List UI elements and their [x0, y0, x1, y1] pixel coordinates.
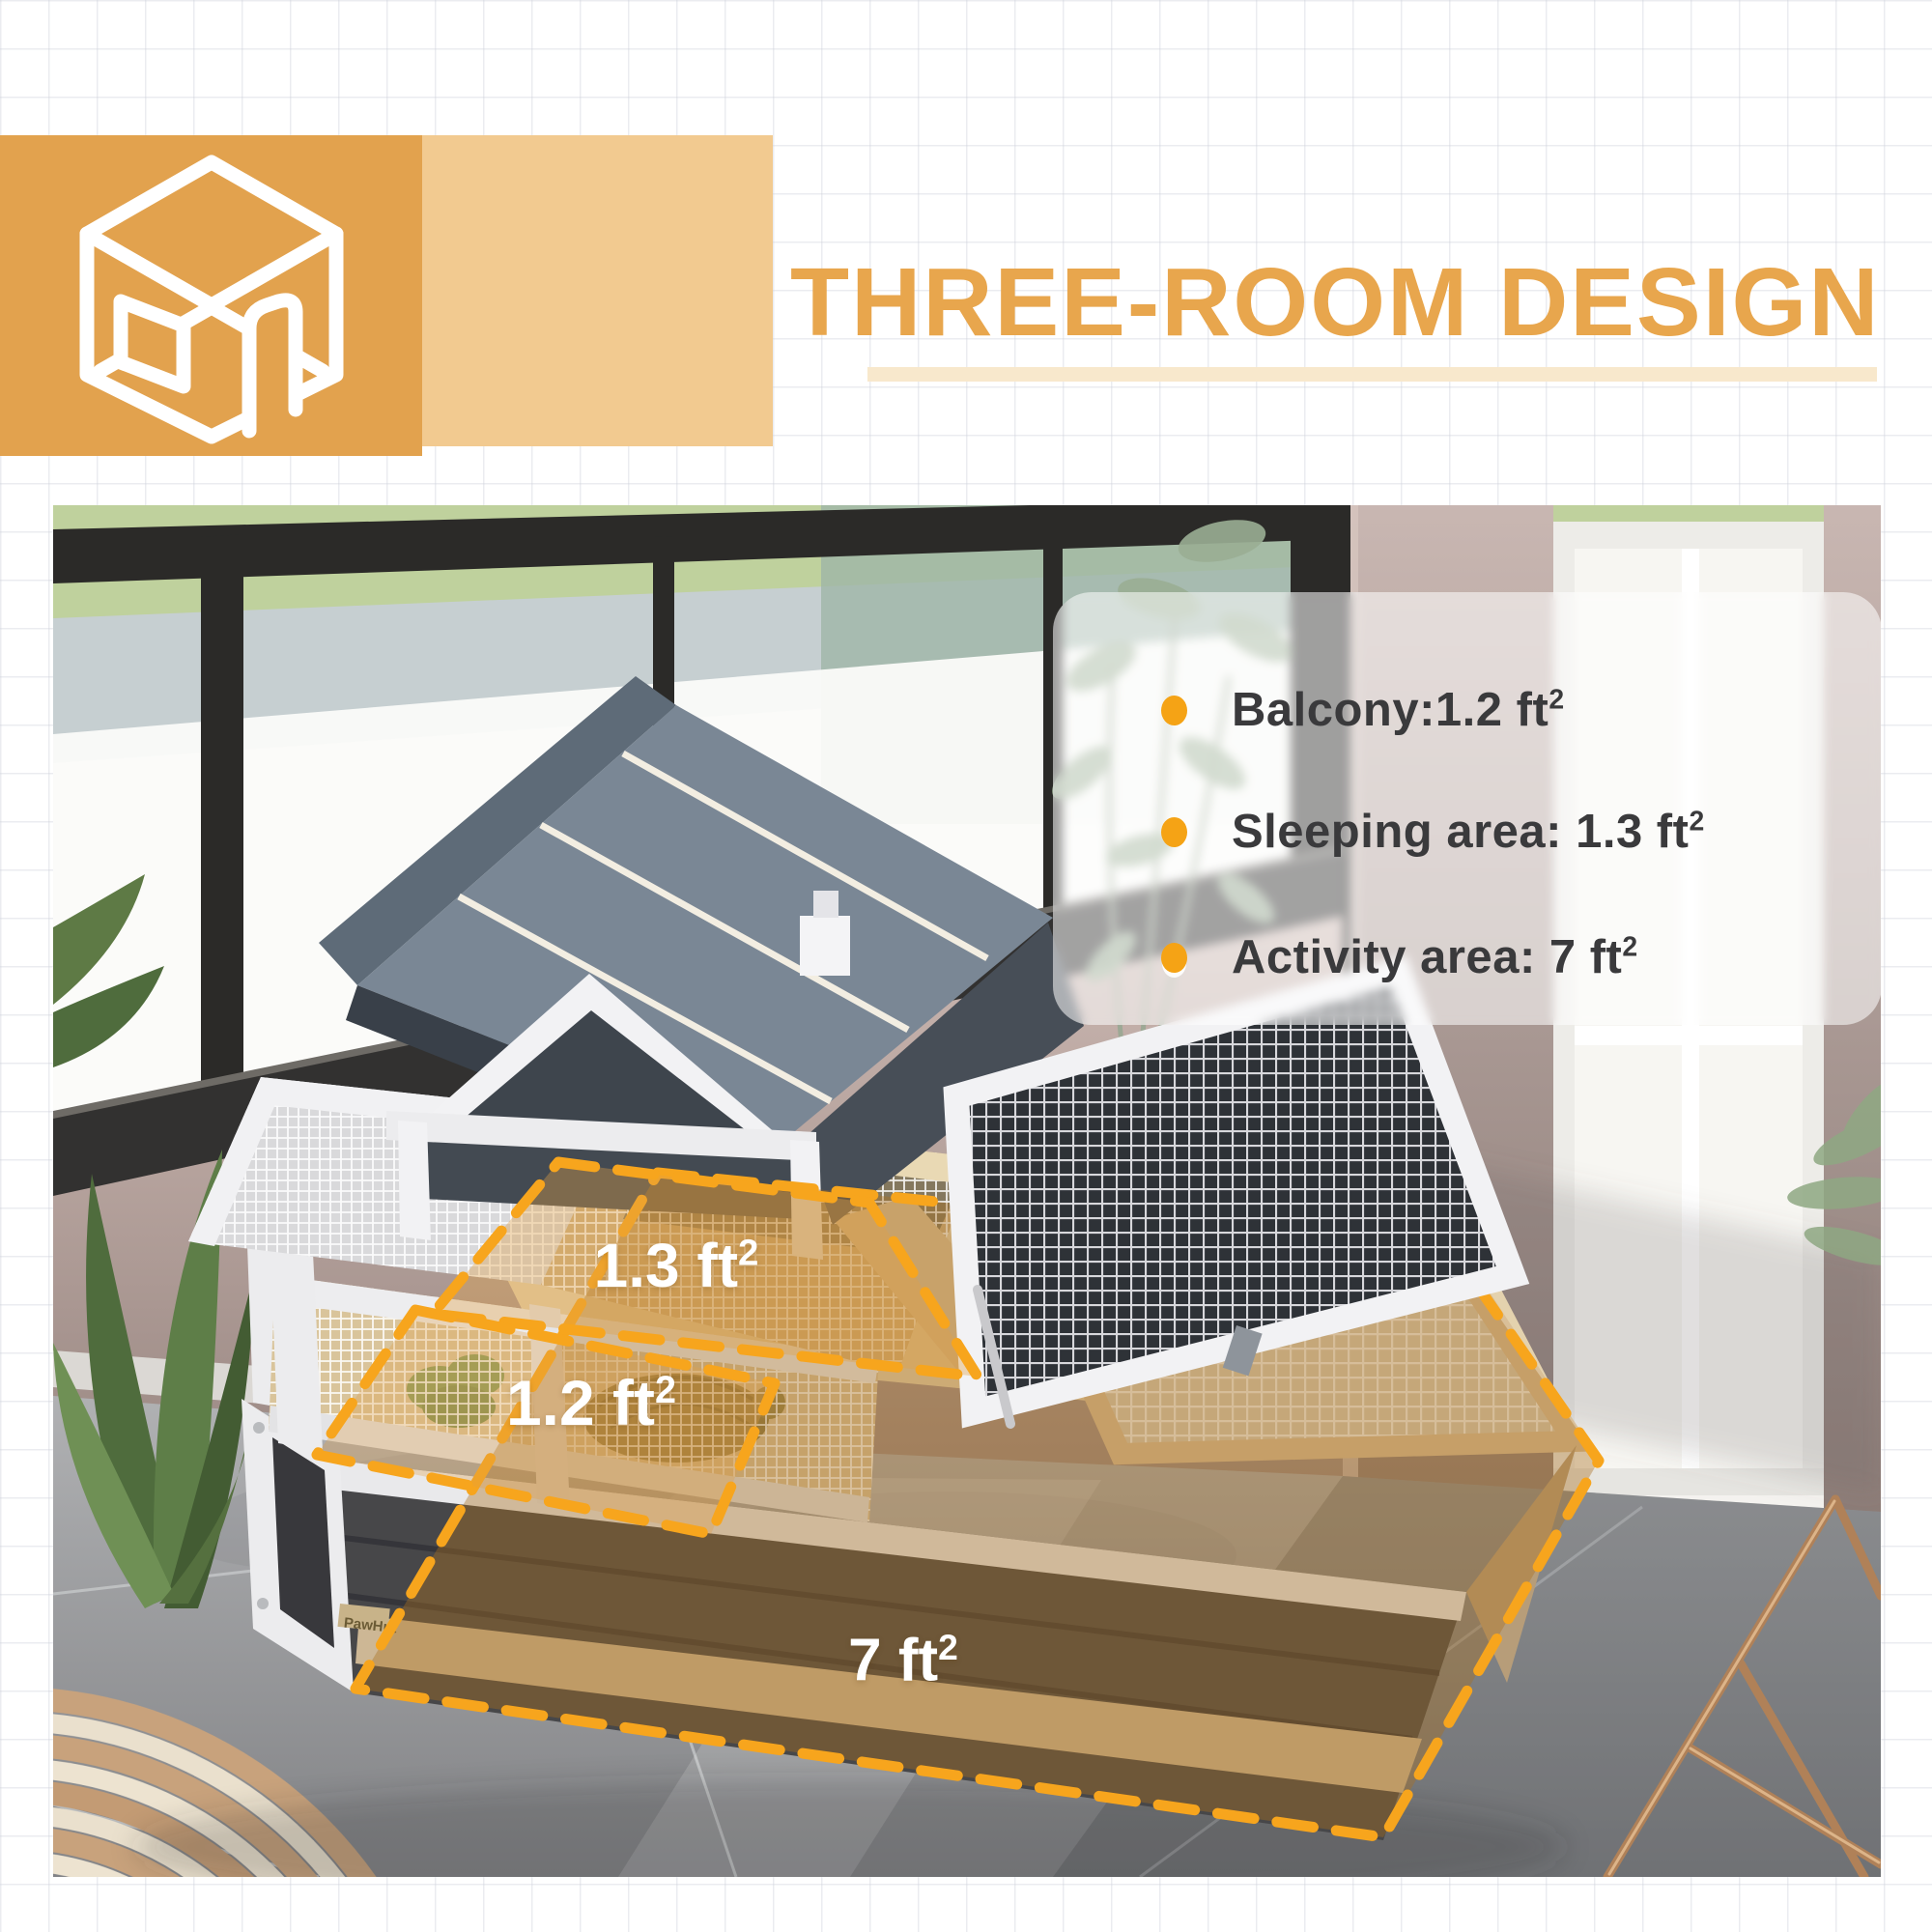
product-infographic: THREE-ROOM DESIGN	[0, 0, 1932, 1932]
page-title: THREE-ROOM DESIGN	[790, 247, 1882, 358]
panel-item-activity-area: Activity area: 7 ft2	[1053, 928, 1638, 986]
product-photo: PawHut	[53, 505, 1881, 1877]
isometric-room-icon	[0, 135, 422, 456]
sleeping-area-label: 1.3 ft2	[594, 1230, 759, 1301]
title-underline	[867, 367, 1877, 382]
panel-item-sleeping-area: Sleeping area: 1.3 ft2	[1053, 803, 1705, 861]
info-panel: Balcony:1.2 ft2 Sleeping area: 1.3 ft2 A…	[1053, 592, 1881, 1025]
balcony-area-label: 1.2 ft2	[506, 1366, 676, 1439]
bullet-icon	[1161, 817, 1187, 847]
activity-area-label: 7 ft2	[848, 1627, 958, 1695]
bullet-icon	[1161, 696, 1187, 725]
logo-square	[0, 135, 422, 456]
bullet-icon	[1161, 943, 1187, 973]
panel-item-balcony: Balcony:1.2 ft2	[1053, 681, 1565, 739]
logo-square-light	[422, 135, 773, 446]
